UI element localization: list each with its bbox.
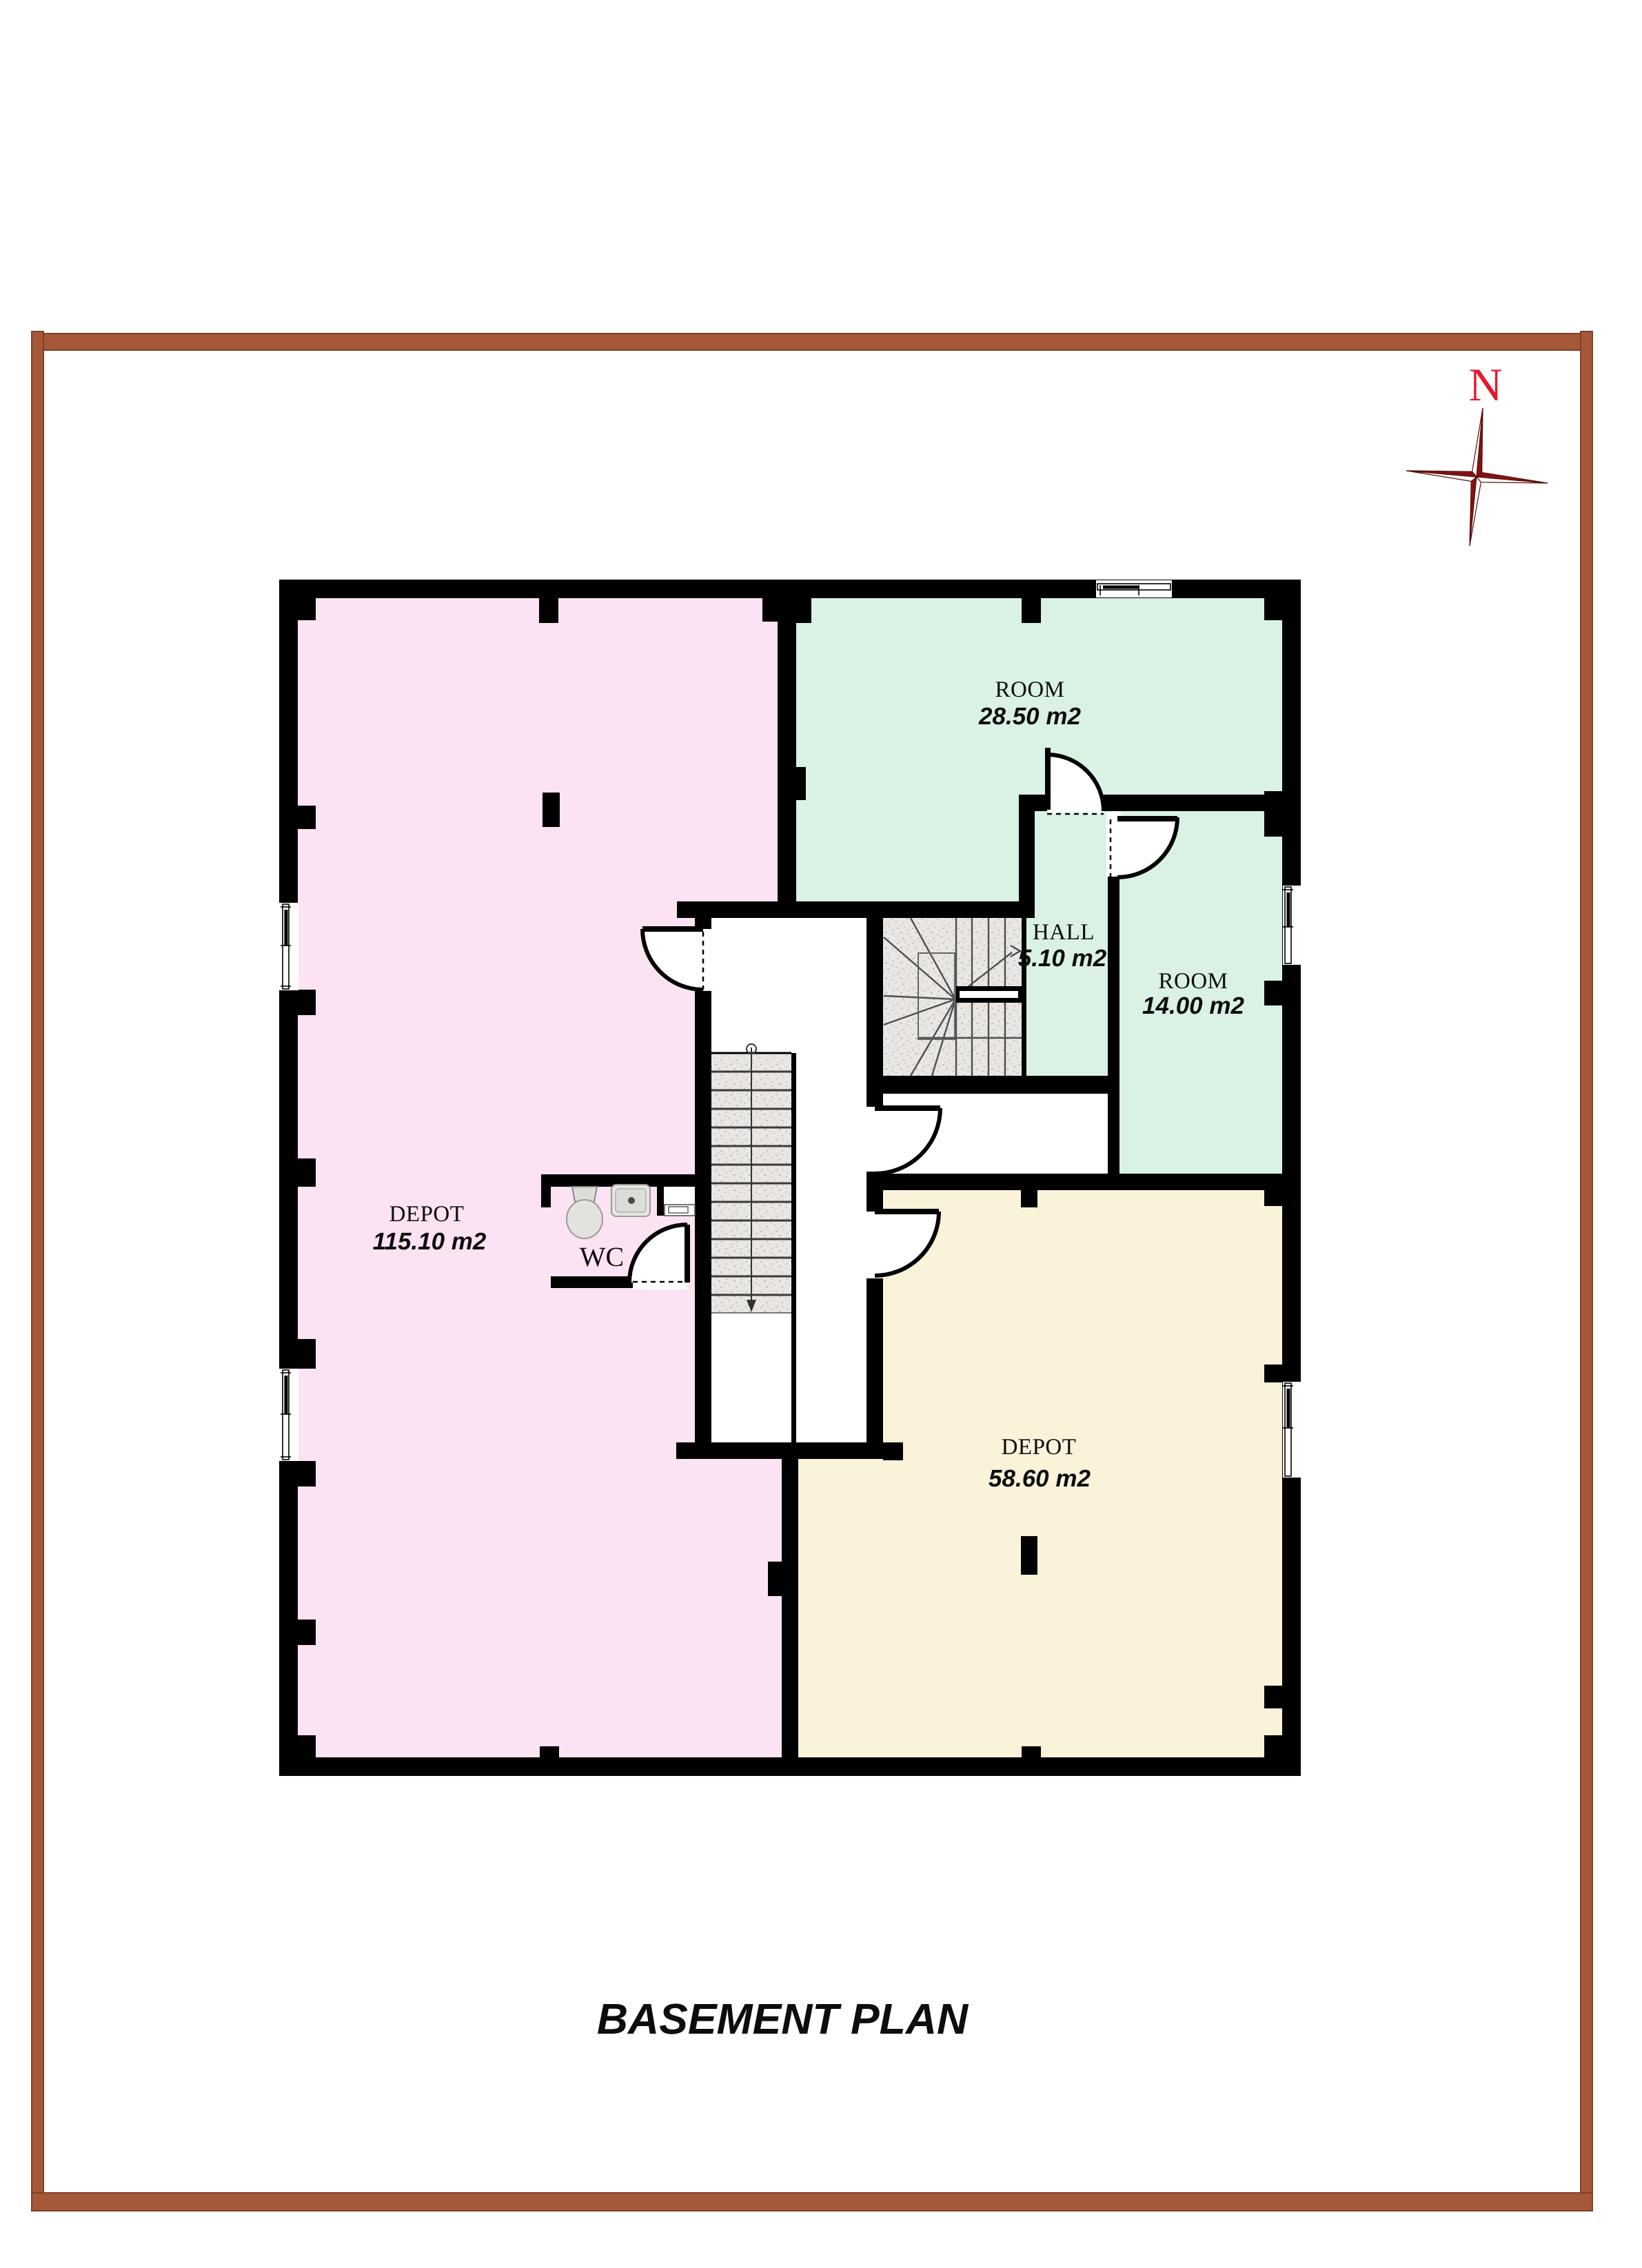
- svg-text:5.10 m2: 5.10 m2: [1018, 945, 1107, 972]
- svg-text:28.50 m2: 28.50 m2: [978, 703, 1081, 730]
- svg-text:DEPOT: DEPOT: [389, 1202, 465, 1227]
- svg-text:115.10 m2: 115.10 m2: [373, 1228, 487, 1255]
- svg-text:DEPOT: DEPOT: [1002, 1435, 1077, 1460]
- svg-text:BASEMENT PLAN: BASEMENT PLAN: [597, 1995, 969, 2043]
- svg-text:ROOM: ROOM: [1158, 969, 1228, 994]
- svg-text:14.00 m2: 14.00 m2: [1142, 992, 1244, 1019]
- svg-text:N: N: [1468, 358, 1502, 411]
- svg-text:HALL: HALL: [1033, 920, 1095, 945]
- svg-text:WC: WC: [580, 1241, 624, 1272]
- svg-text:58.60 m2: 58.60 m2: [989, 1465, 1091, 1492]
- svg-text:ROOM: ROOM: [995, 677, 1064, 702]
